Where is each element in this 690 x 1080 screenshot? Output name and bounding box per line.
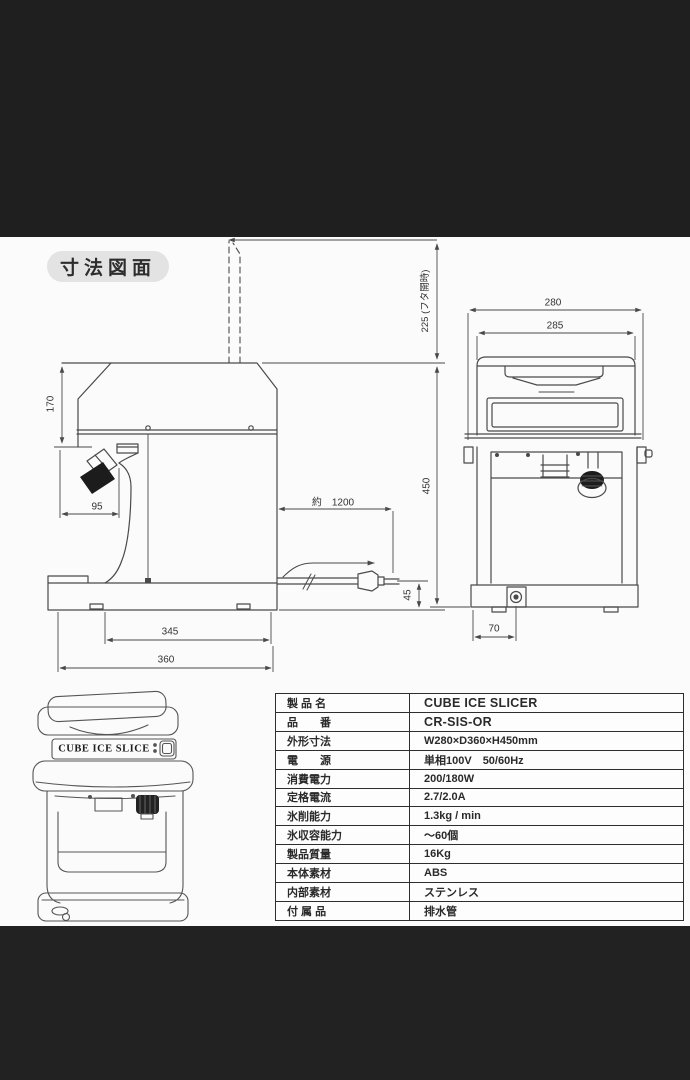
spec-value: ABS — [410, 864, 684, 883]
dim-label-width-outer: 280 — [545, 298, 562, 309]
spec-label: 外形寸法 — [276, 731, 410, 750]
spec-label: 氷収容能力 — [276, 826, 410, 845]
dim-label-depth-inner: 345 — [162, 627, 179, 638]
dim-label-head-height: 170 — [46, 396, 57, 413]
dim-label-cord-height: 45 — [403, 589, 414, 600]
spec-label: 消費電力 — [276, 769, 410, 788]
dim-label-cord-length: 約 1200 — [312, 494, 354, 509]
spec-value: ステンレス — [410, 883, 684, 902]
spec-label: 内部素材 — [276, 883, 410, 902]
spec-label: 付 属 品 — [276, 901, 410, 920]
dim-label-width-lid: 285 — [547, 321, 564, 332]
spec-row: 定格電流 2.7/2.0A — [276, 788, 684, 807]
dim-label-chute-width: 95 — [91, 502, 102, 513]
spec-value: CUBE ICE SLICER — [410, 694, 684, 713]
spec-row: 製 品 名 CUBE ICE SLICER — [276, 694, 684, 713]
spec-table: 製 品 名 CUBE ICE SLICER 品 番 CR-SIS-OR 外形寸法… — [275, 693, 684, 921]
spec-value: CR-SIS-OR — [410, 712, 684, 731]
spec-row: 氷削能力 1.3kg / min — [276, 807, 684, 826]
spec-value: 1.3kg / min — [410, 807, 684, 826]
spec-row: 氷収容能力 〜60個 — [276, 826, 684, 845]
spec-label: 製 品 名 — [276, 694, 410, 713]
spec-value: 2.7/2.0A — [410, 788, 684, 807]
spec-label: 氷削能力 — [276, 807, 410, 826]
page-title: 寸法図面 — [47, 251, 169, 282]
spec-row: 外形寸法 W280×D360×H450mm — [276, 731, 684, 750]
spec-value: 単相100V 50/60Hz — [410, 750, 684, 769]
dim-label-drain-offset: 70 — [488, 624, 499, 635]
brand-label: CUBE ICE SLICE — [58, 744, 150, 755]
spec-row: 消費電力 200/180W — [276, 769, 684, 788]
photo-stage: 寸法図面 225 (フタ開時) 280 285 170 95 約 1200 45… — [0, 0, 690, 1080]
spec-value: 排水管 — [410, 901, 684, 920]
spec-label: 品 番 — [276, 712, 410, 731]
spec-label: 本体素材 — [276, 864, 410, 883]
spec-value: W280×D360×H450mm — [410, 731, 684, 750]
spec-value: 〜60個 — [410, 826, 684, 845]
spec-row: 製品質量 16Kg — [276, 845, 684, 864]
spec-row: 電 源 単相100V 50/60Hz — [276, 750, 684, 769]
dim-label-total-height: 450 — [422, 478, 433, 495]
spec-label: 製品質量 — [276, 845, 410, 864]
spec-value: 200/180W — [410, 769, 684, 788]
spec-row: 内部素材 ステンレス — [276, 883, 684, 902]
spec-value: 16Kg — [410, 845, 684, 864]
dim-label-lid-open-height: 225 (フタ開時) — [417, 270, 431, 333]
spec-row: 品 番 CR-SIS-OR — [276, 712, 684, 731]
spec-row: 本体素材 ABS — [276, 864, 684, 883]
spec-label: 電 源 — [276, 750, 410, 769]
spec-row: 付 属 品 排水管 — [276, 901, 684, 920]
dim-label-depth-total: 360 — [158, 655, 175, 666]
spec-label: 定格電流 — [276, 788, 410, 807]
